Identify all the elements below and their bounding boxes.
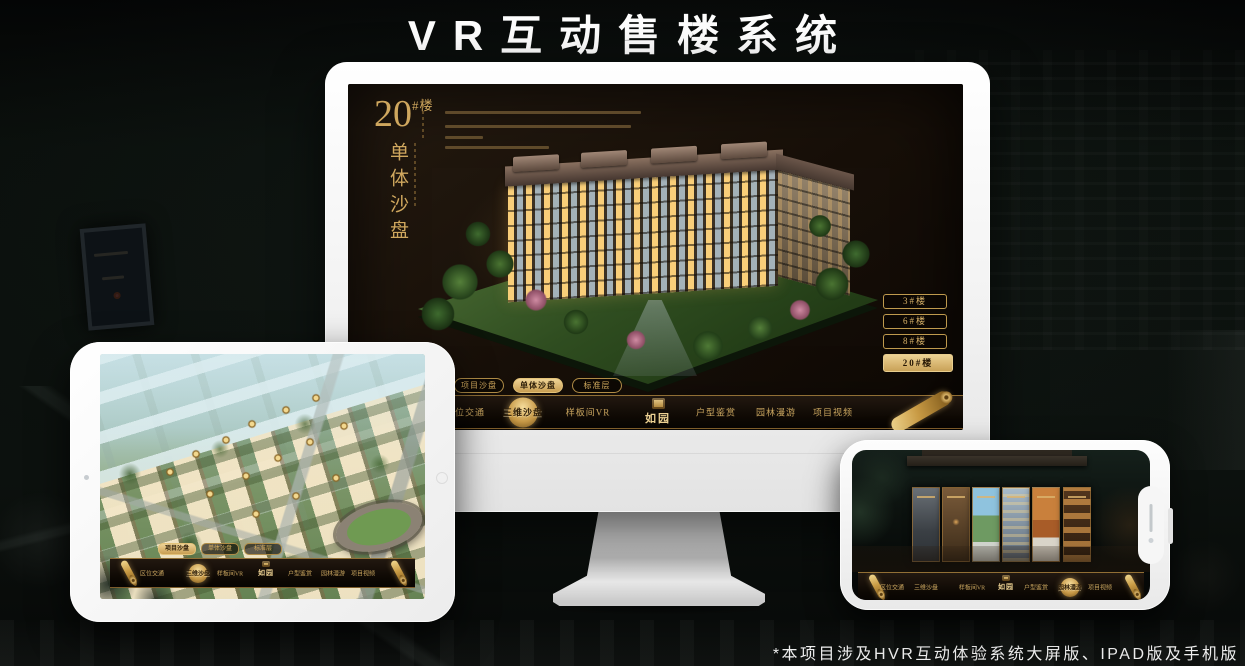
background-certificate-frame	[80, 223, 155, 330]
gallery-lintel	[907, 456, 1087, 466]
ipad-home-button[interactable]	[436, 472, 448, 484]
ipad-nav-bar: 区位交通 三维沙盘 样板间VR 如园 户型鉴赏 园林漫游 项目视频	[110, 558, 415, 588]
floor-button-20[interactable]: 20#楼	[883, 354, 953, 372]
ipad-nav-item-model-room-vr[interactable]: 样板间VR	[217, 569, 243, 578]
background-light-patch-right	[1165, 330, 1245, 470]
logo-text: 如园	[645, 410, 671, 426]
ipad-nav-item-floorplan[interactable]: 户型鉴赏	[288, 569, 312, 578]
logo-seal-icon	[1002, 575, 1010, 581]
landscape-trees	[408, 114, 888, 394]
ipad-nav-logo: 如园	[258, 561, 274, 578]
phone-nav-item-project-video[interactable]: 项目视频	[1088, 583, 1112, 592]
phone-nav-item-floorplan[interactable]: 户型鉴赏	[1024, 583, 1048, 592]
floor-button-3[interactable]: 3#楼	[883, 294, 947, 309]
phone-nav-item-3d-sandtable[interactable]: 三维沙盘	[914, 583, 938, 592]
subtab-project-sandtable[interactable]: 项目沙盘	[158, 543, 196, 555]
scroll-icon[interactable]	[1124, 573, 1142, 599]
subtab-standard-floor[interactable]: 标准层	[244, 543, 282, 555]
subtab-project-sandtable[interactable]: 项目沙盘	[454, 378, 504, 393]
scroll-icon[interactable]	[120, 559, 138, 585]
ipad-nav-item-location-traffic[interactable]: 区位交通	[140, 569, 164, 578]
ipad: 项目沙盘 单体沙盘 标准层 区位交通 三维沙盘 样板间VR 如园 户型鉴赏 园林…	[70, 342, 455, 622]
phone-camera-icon	[1149, 538, 1154, 543]
floor-button-8[interactable]: 8#楼	[883, 334, 947, 349]
certificate-line	[102, 275, 124, 280]
phone-nav-bar: 区位交通 三维沙盘 样板间VR 如园 户型鉴赏 园林漫游 项目视频	[858, 572, 1144, 600]
monitor-stand	[553, 505, 765, 606]
monitor-nav-item-garden-tour[interactable]: 园林漫游	[756, 406, 796, 419]
footnote: *本项目涉及HVR互动体验系统大屏版、IPAD版及手机版	[773, 640, 1239, 664]
logo-seal-icon	[262, 561, 270, 567]
phone-screen[interactable]: 区位交通 三维沙盘 样板间VR 如园 户型鉴赏 园林漫游 项目视频	[852, 450, 1150, 600]
floor-button-6[interactable]: 6#楼	[883, 314, 947, 329]
phone: 区位交通 三维沙盘 样板间VR 如园 户型鉴赏 园林漫游 项目视频	[840, 440, 1170, 610]
certificate-seal-icon	[113, 292, 121, 300]
ipad-nav-item-3d-sandtable[interactable]: 三维沙盘	[186, 569, 210, 578]
monitor-subtab-row: 项目沙盘 单体沙盘 标准层	[454, 378, 622, 393]
hero-vertical-title: 单体沙盘	[384, 142, 411, 262]
page-title: VR互动售楼系统	[0, 2, 1245, 63]
scroll-icon[interactable]	[390, 559, 408, 585]
phone-nav-item-garden-tour[interactable]: 园林漫游	[1058, 583, 1082, 592]
certificate-line	[94, 251, 128, 257]
logo-text: 如园	[258, 568, 274, 578]
subtab-standard-floor[interactable]: 标准层	[572, 378, 622, 393]
monitor-nav-item-floorplan[interactable]: 户型鉴赏	[696, 406, 736, 419]
ipad-camera-icon	[84, 475, 89, 480]
monitor-nav-logo: 如园	[645, 398, 671, 426]
scroll-icon[interactable]	[889, 389, 954, 430]
phone-nav-logo: 如园	[998, 575, 1014, 592]
subtab-building-sandtable[interactable]: 单体沙盘	[513, 378, 563, 393]
phone-nav-item-location-traffic[interactable]: 区位交通	[880, 583, 904, 592]
ipad-subtab-row: 项目沙盘 单体沙盘 标准层	[158, 543, 282, 555]
ipad-nav-item-project-video[interactable]: 项目视频	[351, 569, 375, 578]
monitor-nav-item-model-room-vr[interactable]: 样板间VR	[566, 406, 611, 419]
monitor-nav-bar: 区位交通 三维沙盘 样板间VR 如园 户型鉴赏 园林漫游 项目视频	[436, 395, 963, 429]
hero-number-text: 20	[374, 93, 412, 135]
ipad-nav-item-garden-tour[interactable]: 园林漫游	[321, 569, 345, 578]
phone-notch	[1138, 486, 1164, 564]
monitor-nav-item-project-video[interactable]: 项目视频	[813, 406, 853, 419]
building-render[interactable]	[408, 114, 888, 394]
phone-power-button[interactable]	[1168, 508, 1173, 544]
phone-speaker-icon	[1150, 504, 1153, 532]
floor-button-group: 3#楼 6#楼 8#楼 20#楼	[883, 294, 953, 377]
gallery-floor	[852, 546, 1150, 572]
logo-text: 如园	[998, 582, 1014, 592]
logo-seal-icon	[652, 398, 665, 409]
phone-nav-item-model-room-vr[interactable]: 样板间VR	[959, 583, 985, 592]
monitor-nav-item-3d-sandtable[interactable]: 三维沙盘	[503, 406, 543, 419]
ipad-screen[interactable]: 项目沙盘 单体沙盘 标准层 区位交通 三维沙盘 样板间VR 如园 户型鉴赏 园林…	[100, 354, 425, 599]
subtab-building-sandtable[interactable]: 单体沙盘	[201, 543, 239, 555]
